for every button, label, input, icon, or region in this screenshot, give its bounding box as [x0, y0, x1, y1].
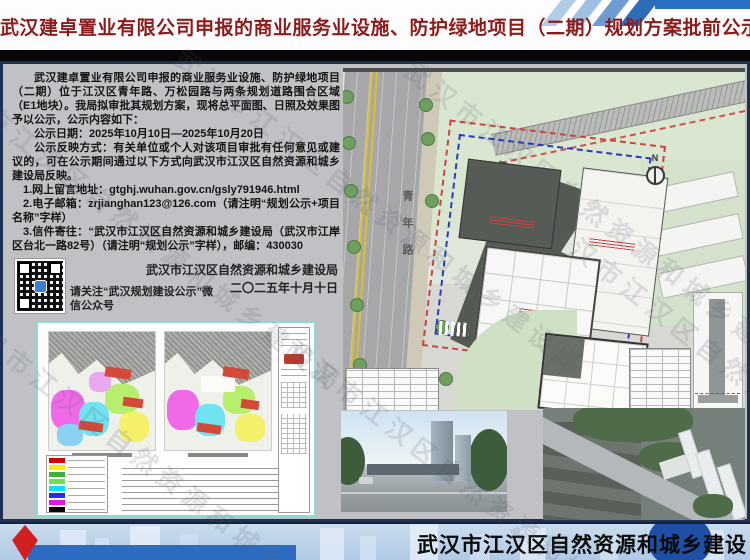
- tree-icon: [439, 372, 453, 386]
- footer-blue-block: [28, 545, 296, 560]
- title-block-line: [281, 333, 307, 334]
- legend-label-line: [68, 502, 105, 503]
- master-site-plan: 青年路 N: [343, 68, 745, 410]
- building-elevation-diagram: [693, 292, 743, 410]
- tower-roof-dark: [458, 159, 561, 250]
- legend-swatch: [49, 486, 65, 491]
- sunshine-patch: [235, 414, 265, 442]
- title-block-grid: [281, 414, 307, 454]
- sunshine-patch: [119, 412, 149, 442]
- qr-eye-icon: [18, 297, 31, 310]
- announcement-item-1: 1.网上留言地址：gtghj.wuhan.gov.cn/gsly791946.h…: [12, 184, 340, 198]
- title-block-grid: [281, 382, 307, 408]
- design-firm-logo: [284, 354, 304, 364]
- podium-building: [367, 464, 459, 475]
- tree-icon: [350, 298, 364, 312]
- legend-row: [49, 486, 105, 492]
- title-block-line: [281, 345, 307, 346]
- qr-eye-icon: [18, 262, 31, 275]
- qr-code: [15, 259, 65, 313]
- road-marking: [341, 492, 507, 494]
- legend-row: [49, 507, 105, 513]
- legend-label-line: [68, 460, 105, 461]
- rendering-street-view: [341, 411, 507, 512]
- qr-caption: 请关注“武汉规划建设公示”微信公众号: [70, 285, 220, 314]
- title-block-line: [281, 369, 307, 370]
- sunshine-map-after: [164, 331, 272, 451]
- sunshine-legend: [46, 455, 108, 513]
- tree-mass: [573, 408, 693, 442]
- elevation-red-line: [695, 393, 740, 394]
- crosswalk: [439, 321, 470, 337]
- divider-bar: [0, 50, 750, 61]
- announcement-text: 武汉建卓置业有限公司申报的商业服务业设施、防护绿地项目（二期）位于江汉区青年路、…: [12, 72, 340, 254]
- indicator-table: [345, 368, 439, 410]
- plan-roof-dark: [543, 335, 585, 379]
- legend-label-line: [68, 509, 105, 510]
- skyline-bar: [360, 536, 376, 560]
- tree-icon: [419, 98, 433, 112]
- legend-swatch: [49, 458, 65, 463]
- announcement-intro: 武汉建卓置业有限公司申报的商业服务业设施、防护绿地项目（二期）位于江汉区青年路、…: [12, 72, 340, 128]
- rendering-aerial-view: [543, 408, 745, 520]
- signature-and-qr-row: 武汉市江汉区自然资源和城乡建设局 二〇二五年十月十日 请关注“武汉规划建设公示”…: [12, 259, 340, 317]
- legend-swatch: [49, 479, 65, 484]
- legend-row: [49, 500, 105, 506]
- legend-row: [49, 458, 105, 464]
- tree-mass: [693, 494, 733, 518]
- car: [359, 477, 373, 484]
- sunshine-map-before: [48, 331, 156, 451]
- elevation-tower: [709, 299, 725, 395]
- legend-swatch: [49, 500, 65, 505]
- north-label: N: [652, 153, 659, 163]
- planning-notice-poster: 武汉建卓置业有限公司申报的商业服务业设施、防护绿地项目（二期）规划方案批前公示 …: [0, 0, 750, 560]
- drawing-title-block: [278, 327, 310, 513]
- building-outline: [240, 398, 259, 409]
- qr-eye-icon: [49, 262, 62, 275]
- legend-label-line: [68, 481, 105, 482]
- tree-icon: [425, 194, 439, 208]
- skyline-bar: [320, 528, 344, 560]
- north-arrow-icon: N: [645, 148, 665, 185]
- announcement-feedback: 公示反映方式：有关单位或个人对该项目审批有任何意见或建议的，可在公示期间通过以下…: [12, 142, 340, 184]
- legend-swatch: [49, 465, 65, 470]
- footer-org-name: 武汉市江汉区自然资源和城乡建设: [417, 529, 747, 559]
- tree-icon: [347, 240, 361, 254]
- announcement-panel: 武汉建卓置业有限公司申报的商业服务业设施、防护绿地项目（二期）位于江汉区青年路、…: [12, 72, 340, 520]
- legend-swatch: [49, 507, 65, 512]
- legend-label-line: [68, 474, 105, 475]
- legend-label-line: [68, 495, 105, 496]
- signature-org: 武汉市江汉区自然资源和城乡建设局: [146, 261, 338, 279]
- announcement-date: 公示日期：2025年10月10日—2025年10月20日: [12, 128, 340, 142]
- header: 武汉建卓置业有限公司申报的商业服务业设施、防护绿地项目（二期）规划方案批前公示: [0, 0, 750, 50]
- footer-band: 武汉市江汉区自然资源和城乡建设: [0, 522, 750, 560]
- page-title: 武汉建卓置业有限公司申报的商业服务业设施、防护绿地项目（二期）规划方案批前公示: [0, 13, 750, 40]
- north-compass: [646, 166, 665, 185]
- legend-swatch: [49, 472, 65, 477]
- plan-legend-table: [629, 348, 691, 410]
- legend-swatch: [49, 493, 65, 498]
- legend-label-line: [68, 488, 105, 489]
- title-block-line: [281, 375, 307, 376]
- decor-top-bar: [655, 0, 750, 9]
- announcement-item-2: 2.电子邮箱：zrjianghan123@126.com（请注明“规划公示+项目…: [12, 198, 340, 226]
- announcement-item-3: 3.信件寄往：“武汉市江汉区自然资源和城乡建设局（武汉市江岸区台北一路82号）（…: [12, 226, 340, 254]
- legend-row: [49, 493, 105, 499]
- title-block-line: [281, 339, 307, 340]
- sunshine-patch: [201, 376, 235, 392]
- legend-row: [49, 479, 105, 485]
- elevation-base: [698, 395, 738, 403]
- road-name-label: 青年路: [399, 190, 415, 271]
- wechat-logo-icon: [34, 280, 47, 293]
- legend-label-line: [68, 467, 105, 468]
- notes-text-lines: [196, 463, 288, 511]
- tree-mass: [469, 429, 507, 491]
- tree-icon: [421, 132, 435, 146]
- sunshine-analysis-sheet: [36, 321, 316, 517]
- map-caption-line: [188, 453, 248, 457]
- legend-row: [49, 465, 105, 471]
- tree-icon: [344, 184, 358, 198]
- legend-row: [49, 472, 105, 478]
